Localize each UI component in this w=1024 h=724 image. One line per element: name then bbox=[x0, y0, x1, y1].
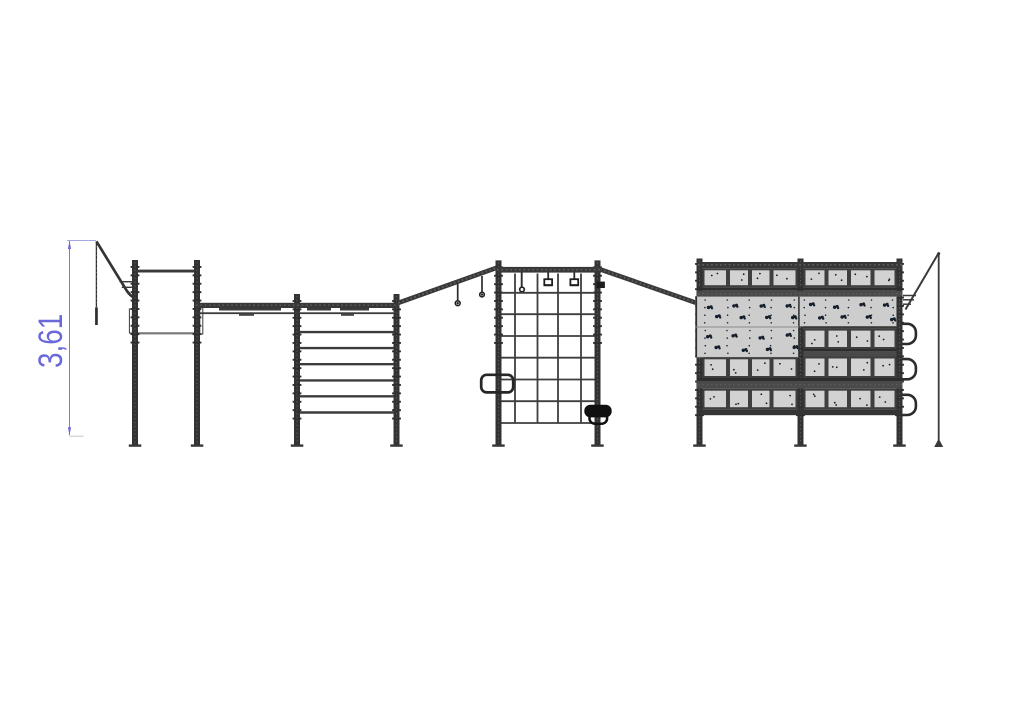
svg-text:3,61: 3,61 bbox=[31, 314, 69, 368]
